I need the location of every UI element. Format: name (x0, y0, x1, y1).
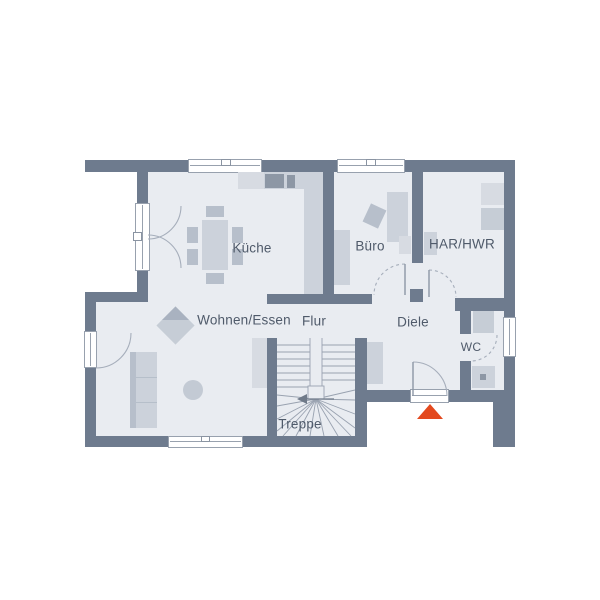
sofa-back (130, 352, 136, 428)
entrance-door-threshold (410, 389, 449, 403)
room-label-kueche: Küche (232, 241, 271, 256)
living-door-line (90, 333, 91, 366)
utility-appliance-1 (481, 183, 504, 205)
kitchen-counter-left (238, 172, 266, 189)
entrance-marker-icon (417, 404, 443, 419)
room-label-wc: WC (461, 340, 481, 354)
dining-chair-bottom (206, 273, 224, 284)
office-shelf (334, 230, 350, 285)
kitchen-appliance (287, 175, 295, 188)
stairs-side-cabinet (252, 338, 267, 388)
room-label-treppe: Treppe (278, 417, 321, 432)
wall-left-upper2 (137, 271, 148, 292)
wall-entrance-a (367, 390, 412, 402)
room-label-buero: Büro (355, 239, 384, 254)
room-label-flur: Flur (302, 314, 326, 329)
office-cabinet-small (399, 236, 411, 254)
wall-top (85, 160, 515, 172)
room-label-wohnen-essen: Wohnen/Essen (197, 313, 291, 328)
office-desk (387, 192, 408, 242)
window-top-right-marker (366, 159, 376, 166)
wall-left-step (85, 292, 148, 302)
dining-table (202, 220, 228, 270)
wall-kueche-flur (267, 294, 372, 304)
terrace-door-line (142, 205, 143, 269)
dining-chair-top (206, 206, 224, 217)
sofa-seam1 (136, 377, 157, 378)
wall-diele-wc-top (455, 298, 504, 311)
dining-chair-left2 (187, 249, 198, 265)
wall-entrance-b (447, 390, 515, 402)
wall-wc-left-a (460, 311, 471, 334)
entrance-door-line (412, 395, 447, 396)
wall-stairs-left (267, 338, 277, 436)
kitchen-counter-side (304, 172, 323, 294)
sofa-seam2 (136, 402, 157, 403)
window-bottom-marker (201, 436, 210, 442)
wc-toilet-detail (480, 374, 486, 380)
wall-left-upper (137, 172, 148, 203)
wall-kueche-buero (323, 172, 334, 294)
wall-stairs-right (355, 338, 367, 447)
terrace-door-handle (133, 232, 142, 241)
floorplan-canvas: Küche Büro HAR/HWR Wohnen/Essen Flur Die… (0, 0, 600, 600)
wc-sink (473, 311, 494, 333)
utility-appliance-2 (481, 208, 504, 230)
kitchen-oven (265, 174, 284, 188)
wall-left-lower-a (85, 302, 96, 331)
room-label-har-hwr: HAR/HWR (429, 237, 495, 252)
window-top-left-marker (221, 159, 231, 166)
dining-chair-left1 (187, 227, 198, 243)
wall-buero-har (412, 172, 423, 263)
wall-door-stub (410, 289, 423, 302)
window-wc-line (509, 319, 510, 355)
side-table (183, 380, 203, 400)
diele-wardrobe (367, 342, 383, 384)
room-label-diele: Diele (397, 315, 429, 330)
wall-right (504, 160, 515, 402)
